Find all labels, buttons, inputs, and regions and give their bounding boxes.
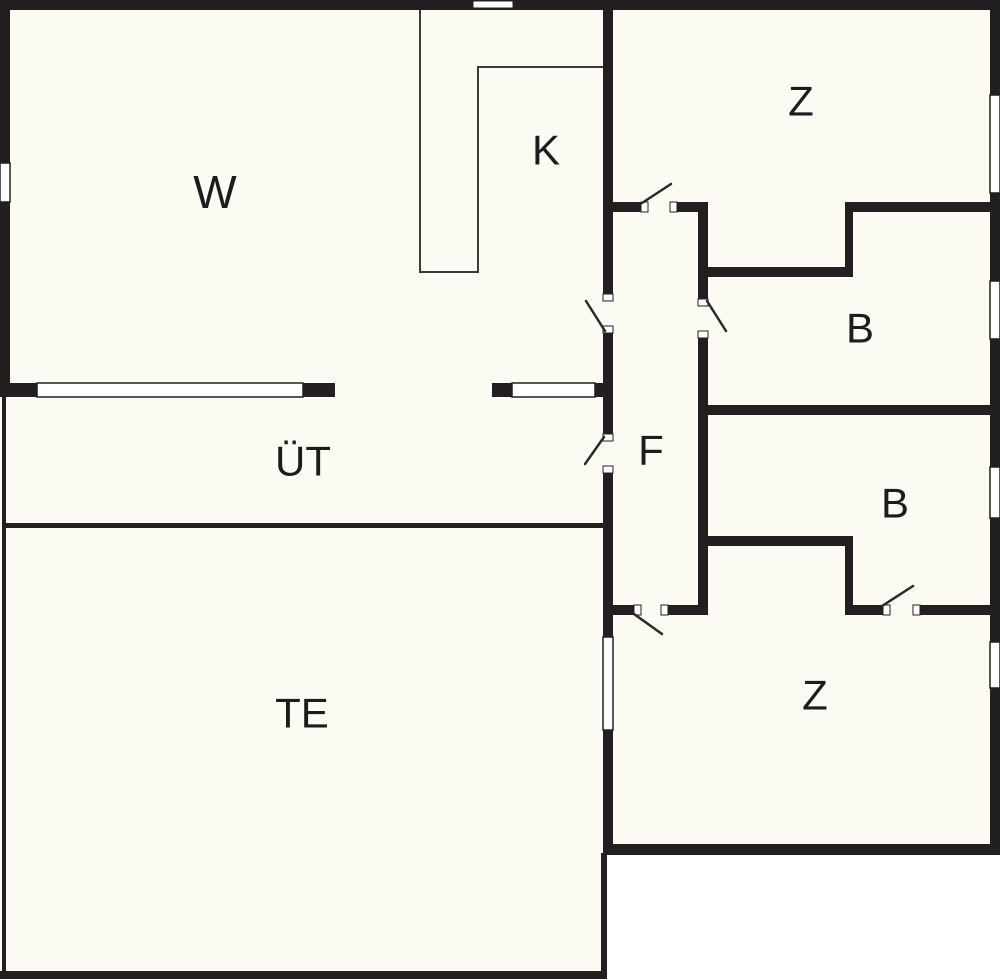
wall-segment <box>698 267 853 277</box>
wall-segment <box>698 338 708 615</box>
window <box>37 383 303 397</box>
thin-wall-segment <box>419 10 421 273</box>
room-label-ut: ÜT <box>275 438 331 485</box>
wall-segment <box>698 536 853 546</box>
wall-segment <box>603 730 613 844</box>
wall-segment <box>303 383 335 397</box>
wall-segment <box>603 473 613 637</box>
window <box>0 163 10 202</box>
chimney-vent <box>473 1 513 8</box>
wall-segment <box>698 405 1000 415</box>
wall-segment <box>845 202 1000 212</box>
wall-segment <box>603 0 613 295</box>
window <box>512 383 595 397</box>
room-label-z-top: Z <box>788 78 814 125</box>
door-jamb <box>661 605 668 615</box>
wall-segment <box>492 383 512 397</box>
room-label-k: K <box>532 127 560 174</box>
wall-segment <box>613 202 642 212</box>
wall-segment <box>0 202 10 383</box>
wall-segment <box>990 518 1000 642</box>
thin-wall-segment <box>477 66 607 68</box>
door-jamb <box>603 294 613 301</box>
floor-plan-svg: WKZBFBZÜTTE <box>0 0 1000 980</box>
wall-segment <box>0 0 10 163</box>
room-label-f: F <box>638 427 664 474</box>
room-label-b-top: B <box>846 305 874 352</box>
wall-segment <box>3 523 603 528</box>
thin-wall-segment <box>419 271 479 273</box>
door-jamb <box>603 466 613 473</box>
wall-segment <box>845 536 853 615</box>
window <box>990 281 1000 339</box>
wall-segment <box>2 397 6 979</box>
wall-segment <box>0 971 607 979</box>
thin-wall-segment <box>477 66 479 273</box>
window <box>990 467 1000 518</box>
wall-segment <box>990 0 1000 95</box>
room-label-te: TE <box>275 690 329 737</box>
window <box>603 637 613 730</box>
wall-segment <box>990 193 1000 281</box>
door-jamb <box>883 605 890 615</box>
window <box>990 642 1000 688</box>
door-jamb <box>698 331 708 338</box>
room-label-z-bottom: Z <box>802 672 828 719</box>
wall-segment <box>0 383 37 397</box>
door-jamb <box>913 605 920 615</box>
room-label-w: W <box>193 166 237 218</box>
floor-plan: WKZBFBZÜTTE <box>0 0 1000 980</box>
wall-segment <box>990 339 1000 467</box>
wall-segment <box>990 688 1000 844</box>
room-label-b-bottom: B <box>881 480 909 527</box>
wall-segment <box>845 202 853 277</box>
wall-segment <box>698 202 708 300</box>
door-jamb <box>670 202 677 212</box>
wall-segment <box>601 853 607 979</box>
wall-segment <box>920 605 1000 615</box>
window <box>990 95 1000 193</box>
wall-segment <box>603 844 1000 855</box>
wall-segment <box>603 332 613 435</box>
